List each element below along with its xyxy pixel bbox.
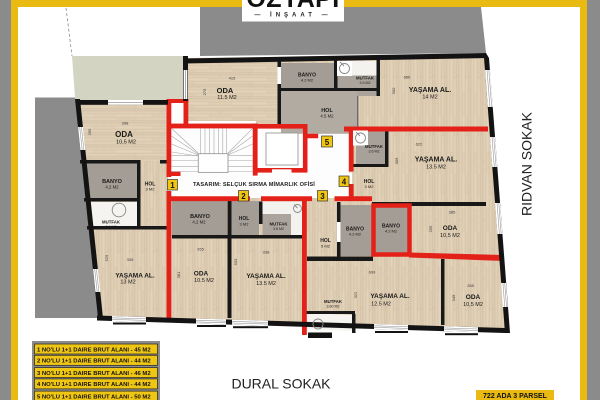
svg-text:699: 699: [369, 270, 376, 275]
svg-text:10.5 M2: 10.5 M2: [194, 278, 214, 284]
svg-text:13 M2: 13 M2: [120, 280, 135, 286]
svg-text:339: 339: [127, 257, 134, 262]
svg-text:ODA: ODA: [115, 130, 133, 139]
svg-text:5: 5: [325, 138, 330, 147]
svg-text:338: 338: [263, 250, 270, 255]
svg-text:12.5 M2: 12.5 M2: [371, 302, 391, 308]
svg-text:MUTFAK: MUTFAK: [356, 76, 375, 81]
svg-text:300: 300: [391, 87, 396, 94]
svg-text:DURAL SOKAK: DURAL SOKAK: [231, 376, 331, 392]
svg-text:5 NO'LU 1+1 DAIRE BRUT ALANI -: 5 NO'LU 1+1 DAIRE BRUT ALANI - 50 M2: [37, 394, 151, 400]
svg-text:ODA: ODA: [217, 86, 234, 95]
svg-text:TASARIM: SELÇUK SIRMA MİMARLIK: TASARIM: SELÇUK SIRMA MİMARLIK OFİSİ: [193, 181, 315, 188]
svg-text:11.5 M2: 11.5 M2: [217, 95, 236, 101]
svg-text:4 NO'LU 1+1 DAIRE BRUT ALANI -: 4 NO'LU 1+1 DAIRE BRUT ALANI - 44 M2: [37, 382, 151, 388]
svg-text:381: 381: [176, 271, 181, 278]
svg-text:13.5 M2: 13.5 M2: [256, 281, 276, 287]
svg-text:722 ADA 3 PARSEL: 722 ADA 3 PARSEL: [483, 393, 548, 400]
svg-text:349: 349: [451, 294, 456, 301]
svg-text:YAŞAMA AL.: YAŞAMA AL.: [370, 293, 410, 300]
svg-text:666: 666: [404, 75, 411, 80]
svg-text:415: 415: [229, 76, 236, 81]
svg-text:YAŞAMA AL.: YAŞAMA AL.: [415, 157, 457, 164]
svg-text:1 NO'LU 1+1 DAIRE BRUT ALANI -: 1 NO'LU 1+1 DAIRE BRUT ALANI - 45 M2: [37, 347, 151, 353]
svg-text:285: 285: [467, 283, 474, 288]
svg-text:RIDVAN SOKAK: RIDVAN SOKAK: [519, 111, 535, 216]
svg-text:3.9 M2: 3.9 M2: [360, 81, 371, 85]
svg-text:MUTFAK: MUTFAK: [270, 222, 289, 227]
svg-text:3 M2: 3 M2: [365, 184, 375, 189]
svg-text:YAŞAMA AL.: YAŞAMA AL.: [246, 273, 286, 280]
svg-text:4.2 M2: 4.2 M2: [385, 229, 398, 234]
svg-text:3 M2: 3 M2: [146, 187, 156, 192]
svg-text:YAŞAMA AL.: YAŞAMA AL.: [409, 87, 451, 94]
svg-text:5 M2: 5 M2: [321, 244, 331, 249]
svg-text:265: 265: [197, 247, 204, 252]
svg-text:14 M2: 14 M2: [422, 95, 437, 101]
svg-text:503: 503: [233, 258, 238, 265]
svg-text:10,5 M2: 10,5 M2: [116, 140, 136, 146]
svg-text:3: 3: [320, 192, 325, 201]
svg-text:YAŞAMA AL.: YAŞAMA AL.: [115, 273, 155, 280]
svg-text:13.5 M2: 13.5 M2: [426, 165, 446, 171]
svg-text:3 M2: 3 M2: [240, 222, 250, 227]
svg-text:265: 265: [87, 128, 92, 135]
svg-text:ÖZYAPI: ÖZYAPI: [246, 0, 339, 13]
svg-text:4.2 M2: 4.2 M2: [301, 78, 314, 83]
svg-text:— İNŞAAT —: — İNŞAAT —: [254, 11, 331, 18]
svg-text:2 NO'LU 1+1 DAIRE BRUT ALANI -: 2 NO'LU 1+1 DAIRE BRUT ALANI - 44 M2: [37, 359, 151, 365]
svg-text:385: 385: [449, 210, 456, 215]
svg-text:ODA: ODA: [443, 225, 458, 232]
svg-text:529: 529: [104, 254, 109, 261]
svg-text:MUTFAK: MUTFAK: [102, 220, 121, 225]
svg-text:275: 275: [202, 88, 207, 95]
svg-text:ODA: ODA: [466, 294, 481, 301]
svg-text:1: 1: [170, 181, 175, 190]
svg-text:255: 255: [428, 225, 433, 232]
svg-text:4,2 M2: 4,2 M2: [105, 185, 119, 190]
svg-text:4: 4: [342, 178, 347, 187]
svg-text:MUTFAK: MUTFAK: [324, 299, 343, 304]
svg-text:4,2 M2: 4,2 M2: [192, 220, 206, 225]
svg-text:622: 622: [416, 142, 423, 147]
svg-text:322: 322: [353, 291, 358, 298]
svg-text:3.6 M2: 3.6 M2: [273, 227, 284, 231]
svg-text:309: 309: [394, 157, 399, 164]
svg-text:MUTFAK: MUTFAK: [365, 144, 384, 149]
svg-text:3 NO'LU 1+1 DAIRE BRUT ALANI -: 3 NO'LU 1+1 DAIRE BRUT ALANI - 46 M2: [37, 371, 151, 377]
svg-text:4.5 M2: 4.5 M2: [320, 114, 334, 119]
svg-text:398: 398: [122, 121, 129, 126]
svg-text:4.2 M2: 4.2 M2: [349, 232, 362, 237]
svg-text:10,5 M2: 10,5 M2: [440, 233, 460, 239]
svg-text:10,5 M2: 10,5 M2: [463, 302, 483, 308]
svg-text:3.6 M2: 3.6 M2: [369, 150, 380, 154]
svg-text:ODA: ODA: [194, 271, 209, 278]
svg-text:3,60 M2: 3,60 M2: [327, 305, 340, 309]
svg-text:3.9 M2: 3.9 M2: [106, 225, 117, 229]
svg-text:2: 2: [241, 192, 246, 201]
